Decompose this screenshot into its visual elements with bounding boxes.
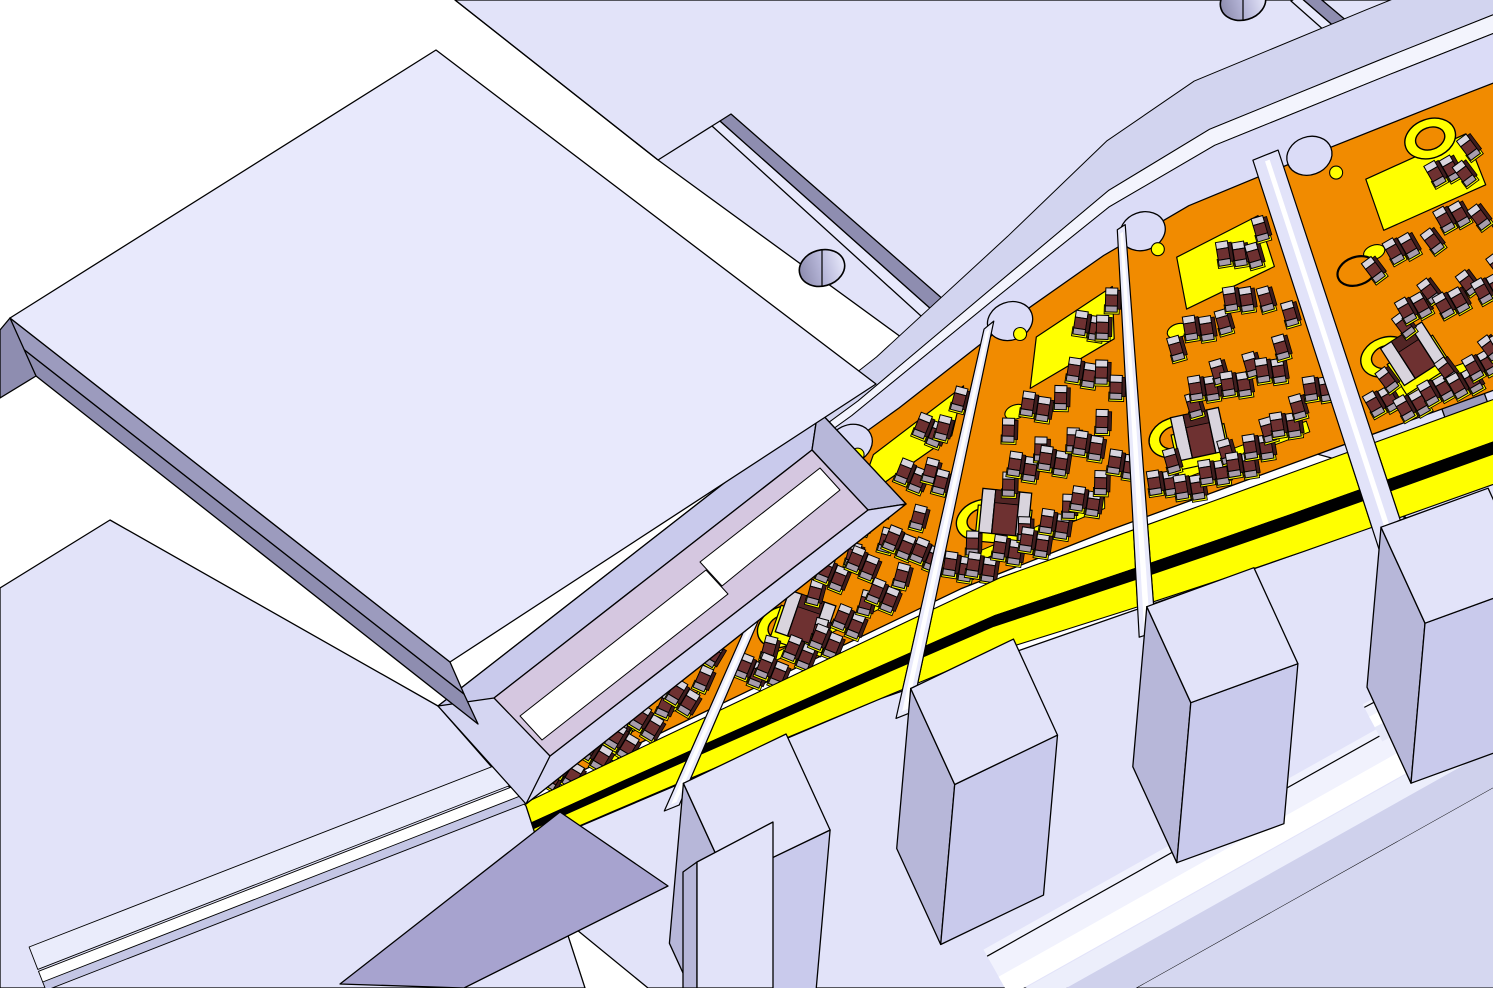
cad-viewport [0, 0, 1493, 988]
smd-chip [1181, 312, 1218, 346]
smd-chip [1104, 288, 1121, 314]
round-pad [1014, 327, 1027, 340]
smd-chip [1095, 315, 1112, 341]
smd-chip [1095, 409, 1112, 435]
smd-chip [1109, 375, 1126, 401]
round-pad [1151, 243, 1164, 256]
round-pad [1330, 166, 1343, 179]
smd-chip [1001, 418, 1018, 444]
pedestal [1133, 568, 1298, 863]
smd-chip [1094, 360, 1111, 386]
smd-chip [1053, 385, 1070, 411]
smd-chip [1214, 238, 1251, 272]
pedestal [897, 639, 1058, 944]
smd-chip [1221, 283, 1258, 317]
cad-canvas[interactable] [0, 0, 1493, 988]
